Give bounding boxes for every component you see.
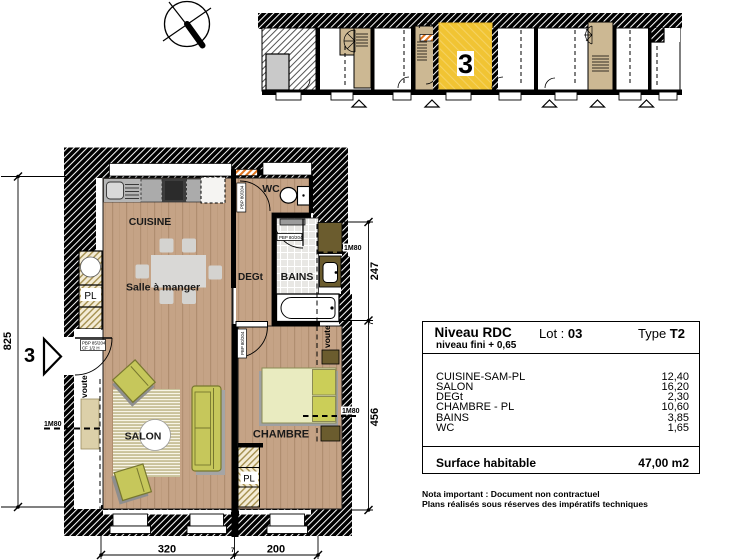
svg-text:PBP 80/204: PBP 80/204 bbox=[279, 235, 303, 240]
svg-text:1M80: 1M80 bbox=[342, 408, 360, 415]
svg-text:200: 200 bbox=[267, 544, 285, 556]
svg-text:SALON: SALON bbox=[125, 431, 162, 443]
svg-text:CUISINE: CUISINE bbox=[129, 216, 172, 228]
svg-text:voute: voute bbox=[79, 375, 89, 398]
svg-text:1M80: 1M80 bbox=[44, 421, 62, 428]
svg-text:3: 3 bbox=[24, 345, 35, 367]
svg-text:PBP 80/204: PBP 80/204 bbox=[240, 331, 245, 355]
svg-text:BAINS: BAINS bbox=[281, 271, 314, 283]
svg-text:1M80: 1M80 bbox=[344, 245, 362, 252]
svg-text:456: 456 bbox=[369, 408, 381, 426]
svg-text:WC: WC bbox=[262, 183, 280, 195]
svg-text:320: 320 bbox=[158, 544, 176, 556]
svg-text:voute: voute bbox=[322, 325, 332, 348]
svg-text:PL: PL bbox=[84, 291, 97, 302]
svg-text:PL: PL bbox=[243, 474, 255, 485]
svg-text:CF 1/2 H: CF 1/2 H bbox=[82, 345, 100, 350]
svg-text:3: 3 bbox=[458, 49, 473, 79]
svg-text:DEGt: DEGt bbox=[238, 272, 264, 283]
svg-text:PBP 80/204: PBP 80/204 bbox=[240, 185, 245, 209]
svg-text:Salle à manger: Salle à manger bbox=[126, 282, 200, 294]
svg-text:247: 247 bbox=[369, 262, 381, 280]
svg-text:825: 825 bbox=[2, 332, 14, 350]
svg-text:CHAMBRE: CHAMBRE bbox=[253, 429, 309, 441]
